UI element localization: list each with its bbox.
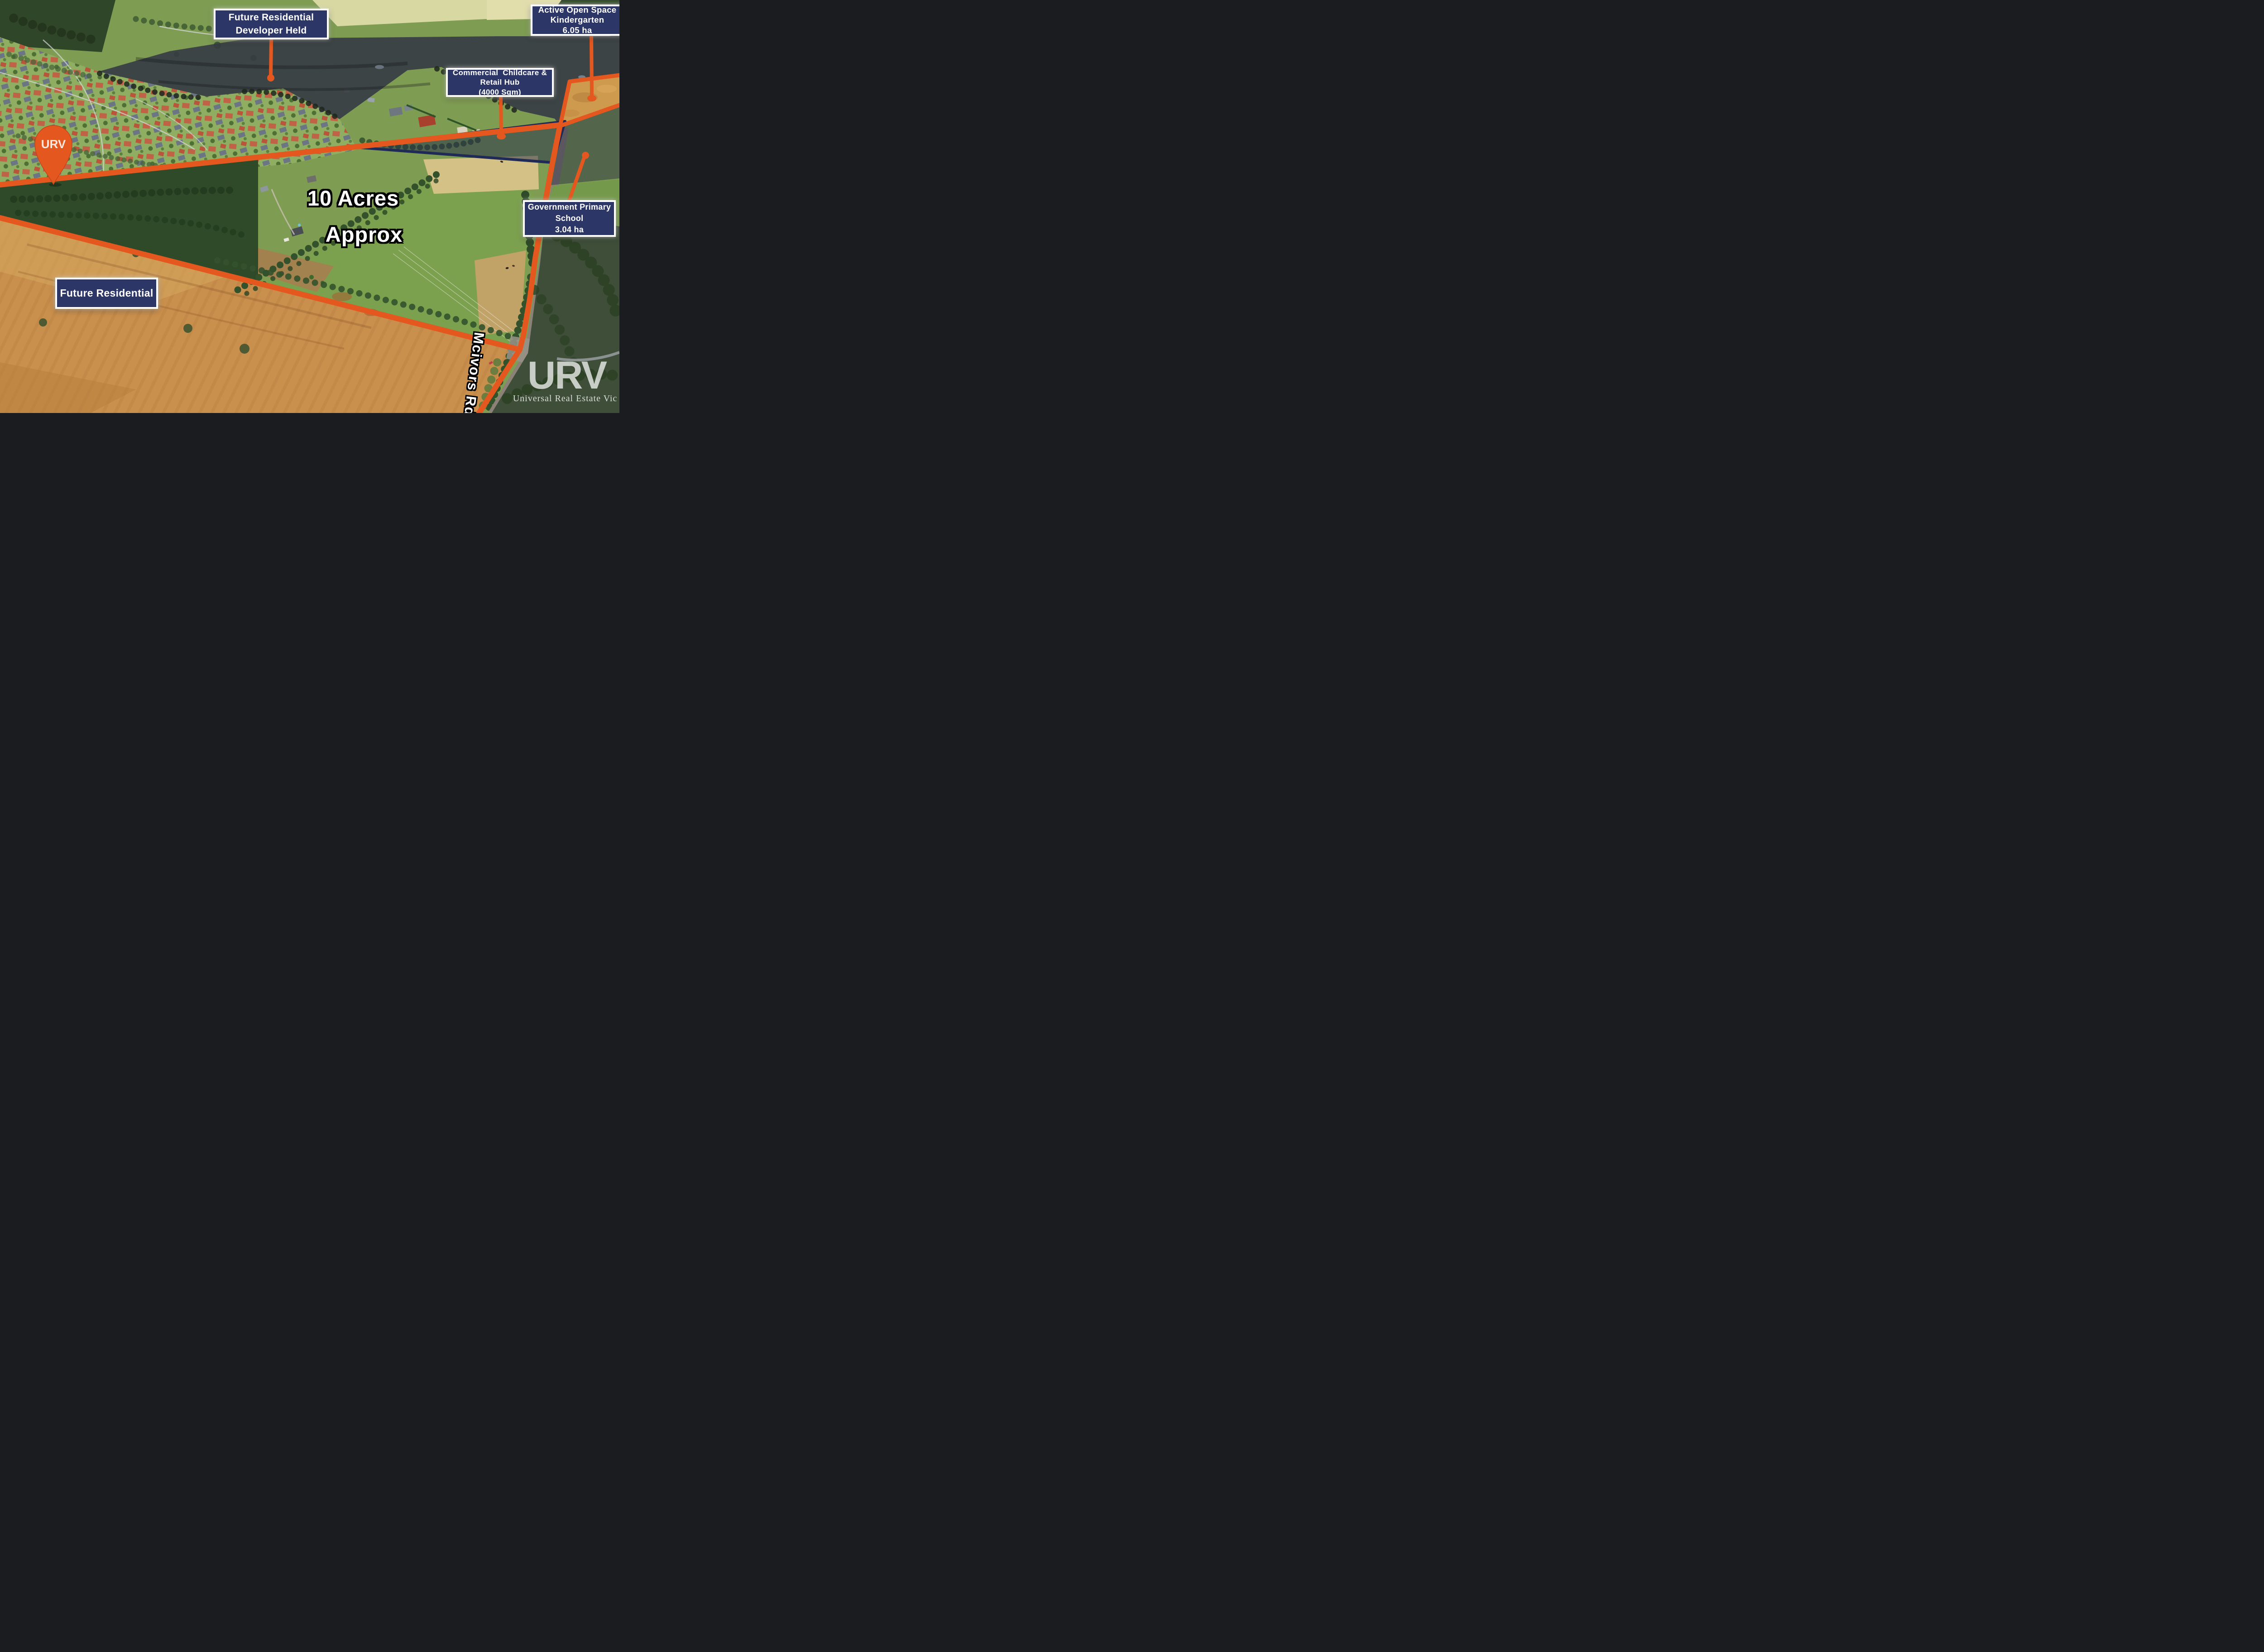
watermark-monogram: URV [528, 354, 607, 397]
label-primary-school: Government Primary School 3.04 ha [523, 200, 616, 237]
label-line: Government Primary [528, 202, 611, 213]
leader-active-open-space [591, 35, 592, 96]
label-future-residential: Future Residential [55, 278, 158, 309]
watermark-logo: URV Universal Real Estate Vic [513, 354, 618, 403]
label-line: School [556, 213, 584, 224]
label-active-open-space: Active Open Space Kindergarten 6.05 ha [531, 5, 619, 36]
label-line: 3.04 ha [555, 224, 584, 235]
label-line: Kindergarten [551, 15, 604, 25]
pin-monogram: URV [41, 137, 66, 151]
label-line: (4000 Sqm) [479, 87, 521, 97]
label-line: Active Open Space [538, 5, 617, 15]
label-line: Developer Held [235, 24, 307, 37]
marker-dot-developer-held [267, 74, 274, 82]
acreage-line1: 10 Acres [307, 186, 399, 210]
label-line: Commercial Childcare & [453, 68, 547, 77]
label-line: Future Residential [60, 287, 153, 299]
acreage-text: 10 Acres Approx [285, 180, 421, 253]
leader-commercial-hub [501, 97, 501, 134]
aerial-property-photo: URV URV Universal Real Estate Vic Future… [0, 0, 619, 413]
watermark-name: Universal Real Estate Vic [513, 394, 618, 403]
marker-dot-primary-school [582, 152, 589, 159]
label-line: Future Residential [229, 11, 314, 24]
label-developer-held: Future Residential Developer Held [214, 9, 329, 39]
leader-developer-held [271, 39, 271, 76]
label-line: Retail Hub [480, 77, 519, 87]
label-commercial-hub: Commercial Childcare & Retail Hub (4000 … [446, 68, 554, 97]
label-line: 6.05 ha [563, 25, 592, 36]
marker-dot-commercial-hub [497, 133, 506, 139]
marker-dot-active-open-space [587, 95, 596, 101]
acreage-line2: Approx [296, 216, 432, 253]
